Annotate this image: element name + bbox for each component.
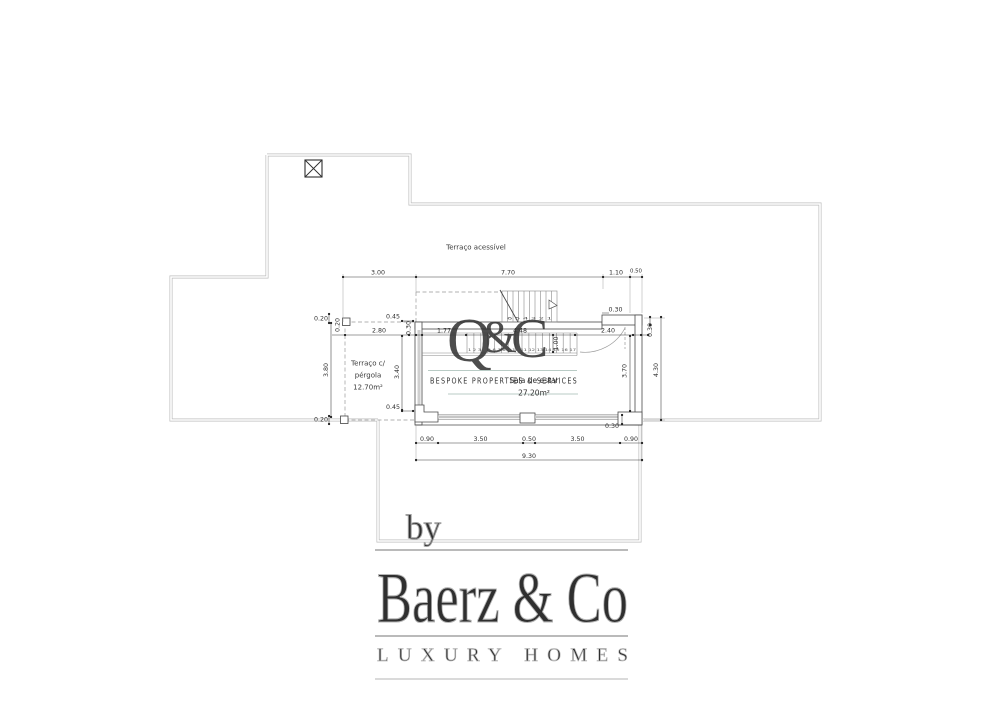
wall-shading bbox=[418, 330, 421, 410]
window-right bbox=[535, 416, 618, 419]
brand-by-label: by bbox=[406, 508, 442, 547]
pergola-post bbox=[343, 318, 351, 326]
dim-label: 1.77 bbox=[437, 328, 451, 335]
living-room-label: Sala de estar bbox=[509, 376, 559, 385]
dim-label: 2.40 bbox=[601, 328, 615, 335]
stair-numbers-upper: 6 5 4 3 2 1 bbox=[507, 317, 552, 321]
dim-label: 0.50 bbox=[522, 436, 536, 443]
dim-label: 3.70 bbox=[622, 364, 629, 378]
pergola-label-line2: pérgola bbox=[355, 372, 381, 380]
dim-label: 3.50 bbox=[570, 436, 584, 443]
pergola-label-line1: Terraço c/ bbox=[350, 360, 386, 368]
dim-label: 0.20 bbox=[314, 417, 328, 424]
floor-plan-svg: Q & C BESPOKE PROPERTIES & SERVICES 3.00… bbox=[0, 0, 1000, 707]
dim-label: 0.30 bbox=[647, 323, 654, 337]
floor-plan-canvas: Q & C BESPOKE PROPERTIES & SERVICES 3.00… bbox=[0, 0, 1000, 707]
pergola-area-label: 12.70m² bbox=[353, 384, 383, 392]
dim-label: 0.45 bbox=[386, 314, 400, 321]
dim-label: 3.00 bbox=[371, 270, 385, 277]
dim-label: 0.50 bbox=[630, 269, 643, 275]
wall-corner-left bbox=[415, 405, 438, 422]
brand-watermark: by Baerz & Co LUXURY HOMES bbox=[375, 508, 628, 679]
dim-label: 9.30 bbox=[522, 453, 536, 460]
dim-label: 0.20 bbox=[314, 316, 328, 323]
dim-label: 3.50 bbox=[473, 436, 487, 443]
dim-label: 4.48 bbox=[513, 328, 527, 335]
dim-label: 0.90 bbox=[624, 436, 638, 443]
living-room-area-label: 27.20m² bbox=[518, 389, 550, 398]
skylight-icon bbox=[305, 160, 322, 177]
dim-label: 4.30 bbox=[653, 363, 660, 377]
dim-label: 2.80 bbox=[372, 328, 386, 335]
dim-label: 0.20 bbox=[335, 318, 342, 332]
dim-label: 0.30 bbox=[608, 307, 622, 314]
dim-label: 3.80 bbox=[323, 363, 330, 377]
stair-direction-arrow-icon bbox=[549, 300, 557, 309]
stair-numbers-lower: 1 2 3 4 5 6 7 8 9 10 11 12 13 14 15 16 1… bbox=[468, 348, 576, 352]
dim-label: 1.10 bbox=[609, 270, 623, 277]
dim-label: 3.40 bbox=[394, 365, 401, 379]
brand-tagline: LUXURY HOMES bbox=[377, 645, 628, 666]
window-left bbox=[438, 416, 520, 419]
dim-label: 0.45 bbox=[386, 404, 400, 411]
dim-label: 0.30 bbox=[406, 321, 413, 335]
brand-wordmark: Baerz & Co bbox=[377, 558, 628, 638]
wall-pillar bbox=[520, 413, 535, 423]
dim-label: 7.70 bbox=[501, 270, 515, 277]
terrace-label: Terraço acessível bbox=[445, 244, 506, 252]
dim-label: 0.90 bbox=[420, 436, 434, 443]
dim-label: 0.30 bbox=[605, 423, 619, 430]
pergola-post bbox=[341, 416, 349, 424]
